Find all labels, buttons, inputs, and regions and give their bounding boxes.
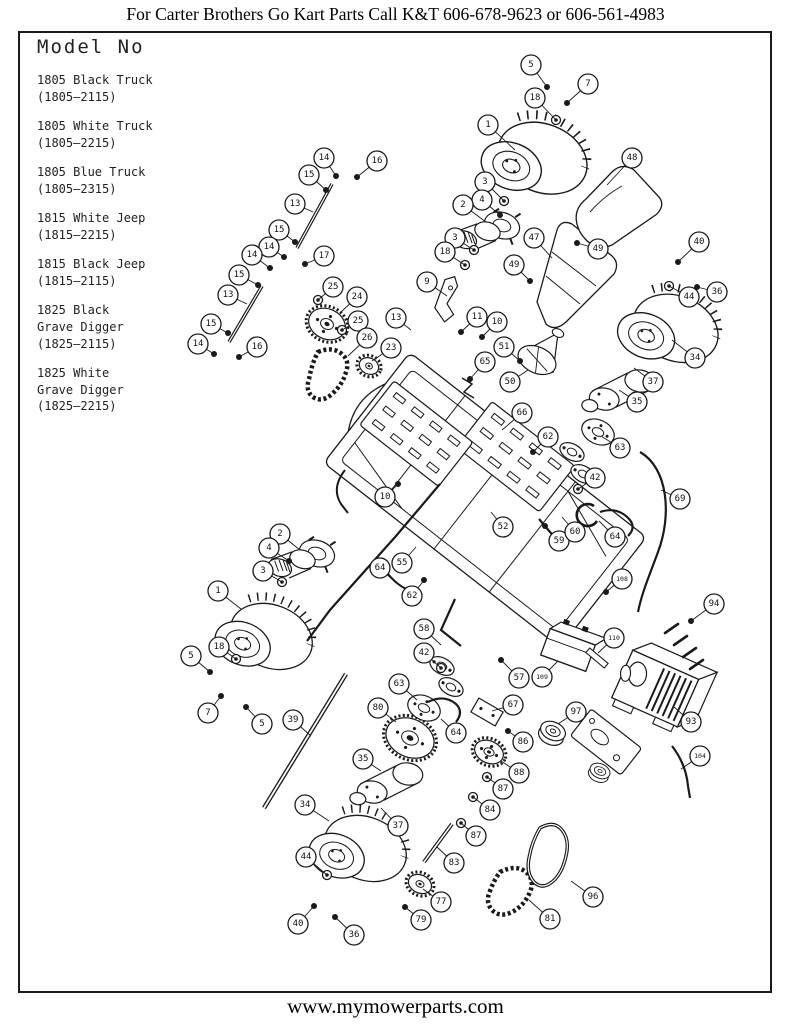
svg-text:34: 34: [690, 353, 701, 363]
svg-text:24: 24: [352, 292, 363, 302]
callout-5: 5: [521, 55, 547, 87]
callout-57: 57: [501, 660, 529, 688]
callout-109: 109: [532, 661, 558, 687]
drive-belt: [528, 824, 567, 886]
callout-25: 25: [318, 277, 343, 300]
svg-text:88: 88: [514, 768, 525, 778]
svg-text:36: 36: [349, 930, 360, 940]
svg-text:37: 37: [648, 377, 659, 387]
sprocket: [300, 299, 354, 349]
svg-text:14: 14: [264, 242, 275, 252]
sprocket: [467, 732, 510, 771]
svg-text:35: 35: [632, 397, 643, 407]
svg-text:110: 110: [608, 634, 620, 642]
svg-text:1: 1: [215, 586, 220, 596]
svg-text:10: 10: [380, 492, 391, 502]
callout-5: 5: [246, 707, 272, 734]
svg-text:5: 5: [528, 60, 533, 70]
exploded-diagram: 5718148342318947494940443614151613151414…: [0, 0, 791, 1024]
svg-text:63: 63: [394, 679, 405, 689]
svg-text:49: 49: [593, 244, 604, 254]
svg-text:4: 4: [479, 195, 484, 205]
svg-text:13: 13: [290, 199, 301, 209]
svg-text:80: 80: [373, 703, 384, 713]
svg-text:79: 79: [416, 915, 427, 925]
callout-36: 36: [697, 282, 727, 302]
callout-80: 80: [368, 698, 396, 722]
callout-84: 84: [473, 797, 500, 820]
callout-97: 97: [558, 702, 586, 724]
svg-text:44: 44: [301, 852, 312, 862]
svg-text:2: 2: [460, 200, 465, 210]
callout-7: 7: [567, 74, 598, 103]
svg-text:7: 7: [205, 708, 210, 718]
svg-text:18: 18: [214, 642, 225, 652]
callout-13: 13: [285, 194, 313, 214]
svg-text:36: 36: [712, 287, 723, 297]
svg-text:52: 52: [498, 522, 509, 532]
callout-36: 36: [335, 917, 364, 945]
svg-text:59: 59: [554, 536, 565, 546]
svg-text:15: 15: [304, 170, 315, 180]
callout-5: 5: [181, 646, 210, 672]
svg-text:104: 104: [694, 752, 706, 760]
callout-9: 9: [417, 272, 447, 296]
callout-62: 62: [402, 580, 424, 606]
callout-50: 50: [500, 370, 528, 392]
callout-34: 34: [295, 795, 329, 821]
svg-text:51: 51: [499, 342, 510, 352]
svg-text:2: 2: [277, 529, 282, 539]
callout-77: 77: [423, 889, 451, 912]
svg-text:5: 5: [259, 719, 264, 729]
callout-63: 63: [389, 674, 417, 700]
callout-24: 24: [341, 287, 367, 312]
svg-text:18: 18: [440, 247, 451, 257]
callout-39: 39: [283, 710, 311, 736]
callout-40: 40: [678, 232, 709, 262]
svg-text:63: 63: [615, 443, 626, 453]
svg-text:5: 5: [188, 651, 193, 661]
svg-text:15: 15: [274, 225, 285, 235]
svg-text:96: 96: [588, 892, 599, 902]
svg-text:58: 58: [419, 624, 430, 634]
bearing-flange: [436, 674, 466, 700]
svg-text:13: 13: [223, 290, 234, 300]
svg-text:15: 15: [234, 270, 245, 280]
callout-81: 81: [529, 900, 560, 929]
svg-text:18: 18: [530, 93, 541, 103]
svg-text:35: 35: [358, 754, 369, 764]
steering-shaft: [264, 674, 346, 808]
svg-text:81: 81: [545, 914, 556, 924]
svg-text:67: 67: [508, 700, 519, 710]
svg-text:109: 109: [536, 673, 548, 681]
svg-text:25: 25: [353, 316, 364, 326]
svg-text:55: 55: [397, 558, 408, 568]
callout-42: 42: [414, 643, 441, 668]
svg-text:69: 69: [675, 494, 686, 504]
svg-text:84: 84: [485, 805, 496, 815]
svg-text:11: 11: [472, 312, 483, 322]
svg-text:87: 87: [498, 784, 509, 794]
callout-13: 13: [218, 285, 247, 305]
svg-text:87: 87: [471, 831, 482, 841]
svg-text:48: 48: [627, 153, 638, 163]
callout-35: 35: [619, 390, 647, 412]
svg-text:50: 50: [505, 377, 516, 387]
svg-text:13: 13: [391, 313, 402, 323]
svg-text:3: 3: [452, 233, 457, 243]
callout-51: 51: [494, 337, 520, 361]
callout-11: 11: [461, 307, 487, 332]
svg-text:65: 65: [480, 357, 491, 367]
callout-96: 96: [571, 881, 603, 907]
svg-text:57: 57: [514, 673, 525, 683]
svg-text:14: 14: [319, 153, 330, 163]
svg-text:86: 86: [518, 737, 529, 747]
footer-url: www.mymowerparts.com: [0, 994, 791, 1019]
lever-cable: [672, 746, 690, 798]
svg-text:97: 97: [571, 707, 582, 717]
fender: [576, 166, 662, 247]
callout-15: 15: [299, 165, 326, 190]
svg-text:44: 44: [684, 292, 695, 302]
callout-58: 58: [414, 619, 441, 645]
svg-text:47: 47: [529, 233, 540, 243]
svg-text:3: 3: [482, 177, 487, 187]
brake-rod-bent: [441, 599, 461, 646]
svg-text:17: 17: [319, 251, 330, 261]
callout-47: 47: [524, 228, 552, 258]
callout-87: 87: [461, 823, 486, 846]
svg-text:83: 83: [449, 858, 460, 868]
brake-bracket: [471, 698, 503, 726]
callout-83: 83: [437, 847, 464, 873]
callout-104: 104: [681, 746, 710, 769]
callout-13: 13: [386, 308, 411, 330]
svg-text:42: 42: [590, 473, 601, 483]
svg-text:14: 14: [247, 250, 258, 260]
svg-text:34: 34: [300, 800, 311, 810]
callout-64: 64: [441, 719, 466, 743]
svg-text:16: 16: [252, 342, 263, 352]
callout-65: 65: [470, 352, 495, 379]
callout-26: 26: [348, 328, 377, 356]
svg-text:10: 10: [492, 317, 503, 327]
svg-text:39: 39: [288, 715, 299, 725]
rear-hub-right: [581, 361, 657, 422]
steering-chain: [308, 349, 348, 399]
svg-text:4: 4: [266, 543, 271, 553]
svg-text:37: 37: [393, 821, 404, 831]
callout-16: 16: [357, 151, 387, 177]
frame: [317, 338, 653, 647]
callout-40: 40: [288, 906, 314, 934]
throttle-cable: [638, 452, 666, 612]
svg-text:93: 93: [686, 717, 697, 727]
svg-text:15: 15: [206, 319, 217, 329]
callout-87: 87: [487, 777, 513, 799]
drive-chain: [488, 868, 532, 915]
callout-35: 35: [353, 749, 381, 771]
callout-94: 94: [691, 594, 724, 621]
callout-55: 55: [392, 547, 416, 573]
svg-text:62: 62: [407, 591, 418, 601]
tire-rear-left: [302, 794, 418, 900]
svg-text:40: 40: [694, 237, 705, 247]
svg-text:23: 23: [386, 343, 397, 353]
svg-text:3: 3: [260, 566, 265, 576]
svg-text:26: 26: [362, 333, 373, 343]
svg-text:1: 1: [485, 120, 490, 130]
callout-4: 4: [472, 190, 500, 215]
svg-text:62: 62: [543, 432, 554, 442]
svg-text:64: 64: [375, 563, 386, 573]
steering-boot: [513, 327, 565, 380]
svg-text:60: 60: [570, 527, 581, 537]
svg-text:40: 40: [293, 919, 304, 929]
pulley: [535, 717, 568, 749]
callout-17: 17: [305, 246, 334, 266]
callout-86: 86: [508, 731, 533, 752]
callout-15: 15: [201, 314, 228, 334]
svg-text:9: 9: [424, 277, 429, 287]
callout-49: 49: [504, 255, 530, 281]
svg-text:16: 16: [372, 156, 383, 166]
svg-text:94: 94: [709, 599, 720, 609]
svg-text:49: 49: [509, 260, 520, 270]
svg-text:7: 7: [585, 79, 590, 89]
callout-79: 79: [405, 907, 431, 930]
svg-text:64: 64: [610, 532, 621, 542]
callout-18: 18: [525, 88, 556, 120]
svg-text:64: 64: [451, 728, 462, 738]
callout-1: 1: [208, 581, 241, 609]
svg-text:14: 14: [193, 339, 204, 349]
svg-text:25: 25: [328, 282, 339, 292]
callout-15: 15: [229, 265, 258, 285]
svg-text:42: 42: [419, 648, 430, 658]
callout-7: 7: [198, 696, 221, 723]
callout-16: 16: [239, 337, 267, 357]
svg-text:66: 66: [517, 408, 528, 418]
svg-text:77: 77: [436, 897, 447, 907]
svg-text:108: 108: [616, 575, 628, 583]
page: For Carter Brothers Go Kart Parts Call K…: [0, 0, 791, 1024]
callout-14: 14: [188, 334, 214, 354]
